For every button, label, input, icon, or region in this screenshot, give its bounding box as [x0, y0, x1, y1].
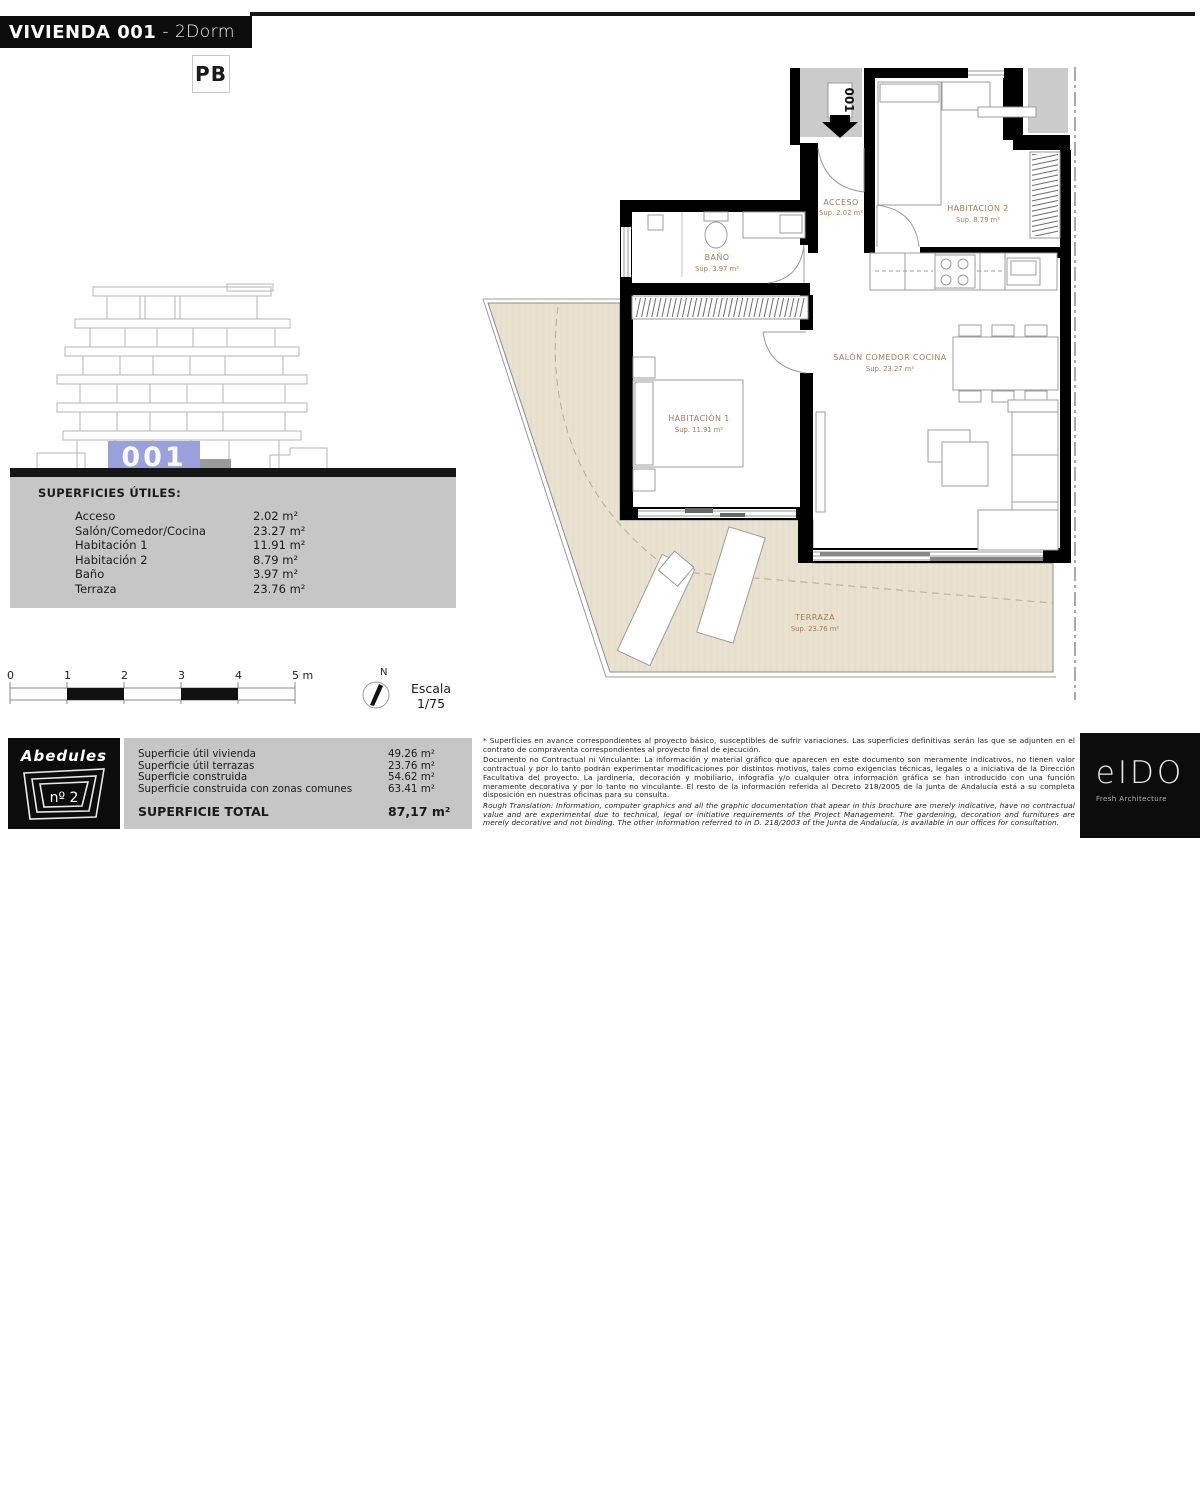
floor-plan: 001: [480, 55, 1080, 735]
summary-table: Superficie útil vivienda 49.26 m² Superf…: [124, 738, 472, 829]
svg-text:Sup. 23.27 m²: Sup. 23.27 m²: [866, 365, 914, 373]
north-arrow-icon: N: [363, 667, 389, 708]
table-row: Terraza 23.76 m²: [75, 582, 456, 597]
scale-value: 1/75: [405, 696, 457, 711]
legal-disclaimer: * Superficies en avance correspondientes…: [483, 737, 1075, 830]
common-zone: [1028, 68, 1068, 133]
room-label-bano: BAÑO: [705, 252, 730, 262]
svg-text:N: N: [380, 667, 387, 678]
scale-ticks-labels: 0 1 2 3 4 5 m: [7, 669, 313, 682]
room-label-acceso: ACCESO: [823, 198, 858, 207]
summary-row: Superficie construida con zonas comunes …: [138, 783, 472, 795]
svg-text:Sup. 3.97 m²: Sup. 3.97 m²: [695, 265, 739, 273]
svg-text:Sup. 8.79 m²: Sup. 8.79 m²: [956, 216, 1000, 224]
building-elevation: 001: [35, 283, 330, 479]
architect-logo-tagline: Fresh Architecture: [1096, 795, 1200, 803]
table-row: Habitación 2 8.79 m²: [75, 553, 456, 568]
svg-text:1: 1: [64, 669, 71, 682]
disclaimer-en: Rough Translation: Information, computer…: [483, 802, 1075, 828]
disclaimer-es-1: * Superficies en avance correspondientes…: [483, 737, 1075, 754]
room-label-habitacion1: HABITACIÓN 1: [668, 412, 730, 423]
disclaimer-es-2: Documento no Contractual ni Vinculante: …: [483, 756, 1075, 800]
scale-bar: 0 1 2 3 4 5 m N: [5, 662, 405, 717]
summary-total-row: SUPERFICIE TOTAL 87,17 m²: [138, 804, 472, 819]
floor-badge: PB: [192, 55, 230, 93]
scale-word: Escala: [405, 681, 457, 696]
project-logo: Abedules nº 2: [8, 738, 120, 829]
room-label-habitacion2: HABITACIÓN 2: [947, 202, 1009, 213]
table-row: Habitación 1 11.91 m²: [75, 538, 456, 553]
scale-caption: Escala 1/75: [405, 681, 457, 711]
table-row: Acceso 2.02 m²: [75, 509, 456, 524]
summary-row: Superficie construida 54.62 m²: [138, 771, 472, 783]
room-label-terraza: TERRAZA: [794, 613, 835, 622]
architect-logo: eIDO Fresh Architecture: [1080, 733, 1200, 838]
svg-text:3: 3: [178, 669, 185, 682]
scale-segment: [67, 688, 124, 700]
project-logo-mark-icon: nº 2: [16, 765, 112, 823]
svg-text:Sup. 23.76 m²: Sup. 23.76 m²: [791, 625, 839, 633]
page-title: VIVIENDA 001 - 2Dorm: [0, 16, 252, 48]
table-row: Salón/Comedor/Cocina 23.27 m²: [75, 524, 456, 539]
unit-subtitle: - 2Dorm: [162, 22, 235, 42]
svg-text:0: 0: [7, 669, 14, 682]
svg-text:4: 4: [235, 669, 242, 682]
surfaces-table: SUPERFICIES ÚTILES: Acceso 2.02 m² Salón…: [10, 477, 456, 608]
summary-row: Superficie útil terrazas 23.76 m²: [138, 760, 472, 772]
surfaces-heading: SUPERFICIES ÚTILES:: [38, 486, 456, 500]
svg-text:Sup. 11.91 m²: Sup. 11.91 m²: [675, 426, 723, 434]
svg-text:5 m: 5 m: [292, 669, 313, 682]
scale-bar-body: [10, 688, 295, 700]
svg-text:nº 2: nº 2: [50, 790, 79, 806]
project-logo-name: Abedules: [21, 747, 107, 765]
table-top-rule: [10, 468, 456, 477]
brochure-page: VIVIENDA 001 - 2Dorm PB: [0, 0, 1200, 1500]
room-label-salon: SALÓN COMEDOR COCINA: [833, 351, 947, 362]
entry-marker-number: 001: [842, 87, 856, 112]
header-rule: [250, 12, 1195, 16]
svg-text:Sup. 2.02 m²: Sup. 2.02 m²: [819, 209, 863, 217]
architect-logo-name: eIDO: [1080, 755, 1200, 791]
scale-segment: [181, 688, 238, 700]
table-row: Baño 3.97 m²: [75, 567, 456, 582]
svg-text:2: 2: [121, 669, 128, 682]
unit-title: VIVIENDA 001: [9, 22, 156, 43]
summary-row: Superficie útil vivienda 49.26 m²: [138, 748, 472, 760]
